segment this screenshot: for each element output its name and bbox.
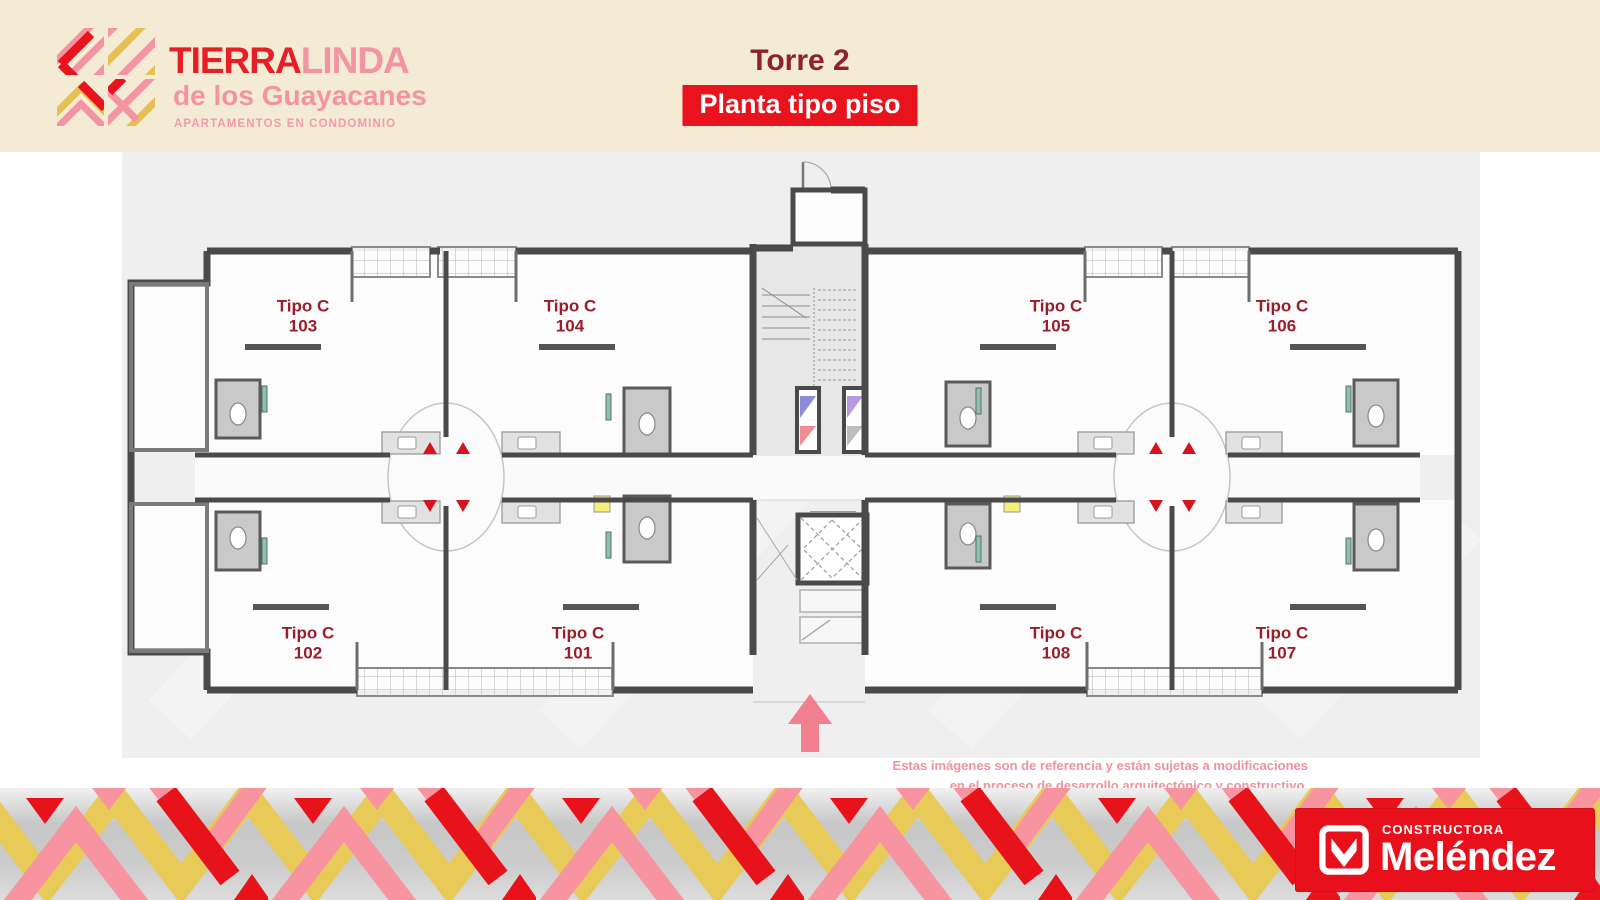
elevator-icon (798, 512, 867, 583)
unit-label-102: Tipo C102 (282, 624, 335, 665)
machine-room (800, 590, 865, 643)
unit-label-105: Tipo C105 (1030, 297, 1083, 338)
melendez-logo: CONSTRUCTORA Meléndez (1295, 808, 1595, 892)
unit-number: 103 (289, 317, 317, 336)
unit-number: 108 (1042, 644, 1070, 663)
flyer-page: TIERRALINDA de los Guayacanes APARTAMENT… (0, 0, 1600, 900)
melendez-m-icon (1317, 823, 1371, 877)
unit-label-108: Tipo C108 (1030, 624, 1083, 665)
unit-number: 105 (1042, 317, 1070, 336)
unit-number: 106 (1268, 317, 1296, 336)
unit-label-106: Tipo C106 (1256, 297, 1309, 338)
unit-number: 101 (564, 644, 592, 663)
unit-number: 102 (294, 644, 322, 663)
unit-type: Tipo C (552, 624, 605, 643)
unit-type: Tipo C (1030, 624, 1083, 643)
unit-type: Tipo C (282, 624, 335, 643)
melendez-company-name: Meléndez (1380, 837, 1556, 877)
disclaimer-line-1: Estas imágenes son de referencia y están… (893, 756, 1308, 776)
unit-number: 107 (1268, 644, 1296, 663)
unit-type: Tipo C (277, 297, 330, 316)
melendez-wordmark: CONSTRUCTORA Meléndez (1380, 823, 1556, 877)
unit-label-103: Tipo C103 (277, 297, 330, 338)
corridor (195, 455, 1420, 500)
unit-type: Tipo C (1256, 624, 1309, 643)
unit-label-107: Tipo C107 (1256, 624, 1309, 665)
unit-label-104: Tipo C104 (544, 297, 597, 338)
unit-type: Tipo C (544, 297, 597, 316)
unit-type: Tipo C (1030, 297, 1083, 316)
footer-band: CONSTRUCTORA Meléndez (0, 788, 1600, 900)
unit-number: 104 (556, 317, 584, 336)
unit-type: Tipo C (1256, 297, 1309, 316)
unit-label-101: Tipo C101 (552, 624, 605, 665)
floor-plan-drawing (0, 0, 1600, 900)
